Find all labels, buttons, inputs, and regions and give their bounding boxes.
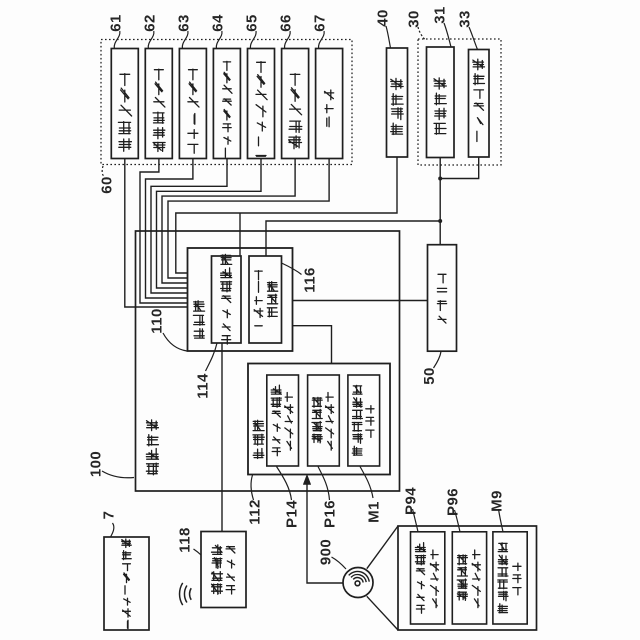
svg-text:118: 118 [177, 527, 194, 552]
svg-text:31: 31 [432, 6, 449, 24]
svg-text:61: 61 [107, 14, 124, 32]
svg-text:66: 66 [278, 14, 295, 32]
svg-text:114: 114 [195, 373, 212, 399]
svg-text:62: 62 [141, 14, 158, 32]
svg-text:50: 50 [421, 367, 438, 385]
svg-text:63: 63 [175, 14, 192, 32]
svg-text:60: 60 [99, 176, 116, 194]
svg-text:40: 40 [375, 9, 392, 27]
svg-text:7: 7 [101, 511, 118, 520]
svg-text:64: 64 [209, 14, 226, 32]
svg-text:900: 900 [318, 539, 335, 565]
svg-text:33: 33 [457, 10, 474, 28]
svg-text:110: 110 [149, 308, 166, 333]
svg-text:P94: P94 [403, 487, 420, 515]
svg-text:65: 65 [244, 14, 261, 32]
svg-text:100: 100 [88, 451, 105, 477]
svg-text:30: 30 [406, 10, 423, 28]
svg-text:M1: M1 [366, 501, 383, 523]
svg-text:112: 112 [247, 499, 264, 524]
svg-text:M9: M9 [489, 490, 506, 512]
svg-text:P96: P96 [445, 488, 462, 516]
svg-text:P16: P16 [322, 500, 339, 528]
svg-text:116: 116 [302, 267, 319, 292]
svg-text:P14: P14 [284, 500, 301, 528]
svg-text:67: 67 [312, 14, 329, 32]
